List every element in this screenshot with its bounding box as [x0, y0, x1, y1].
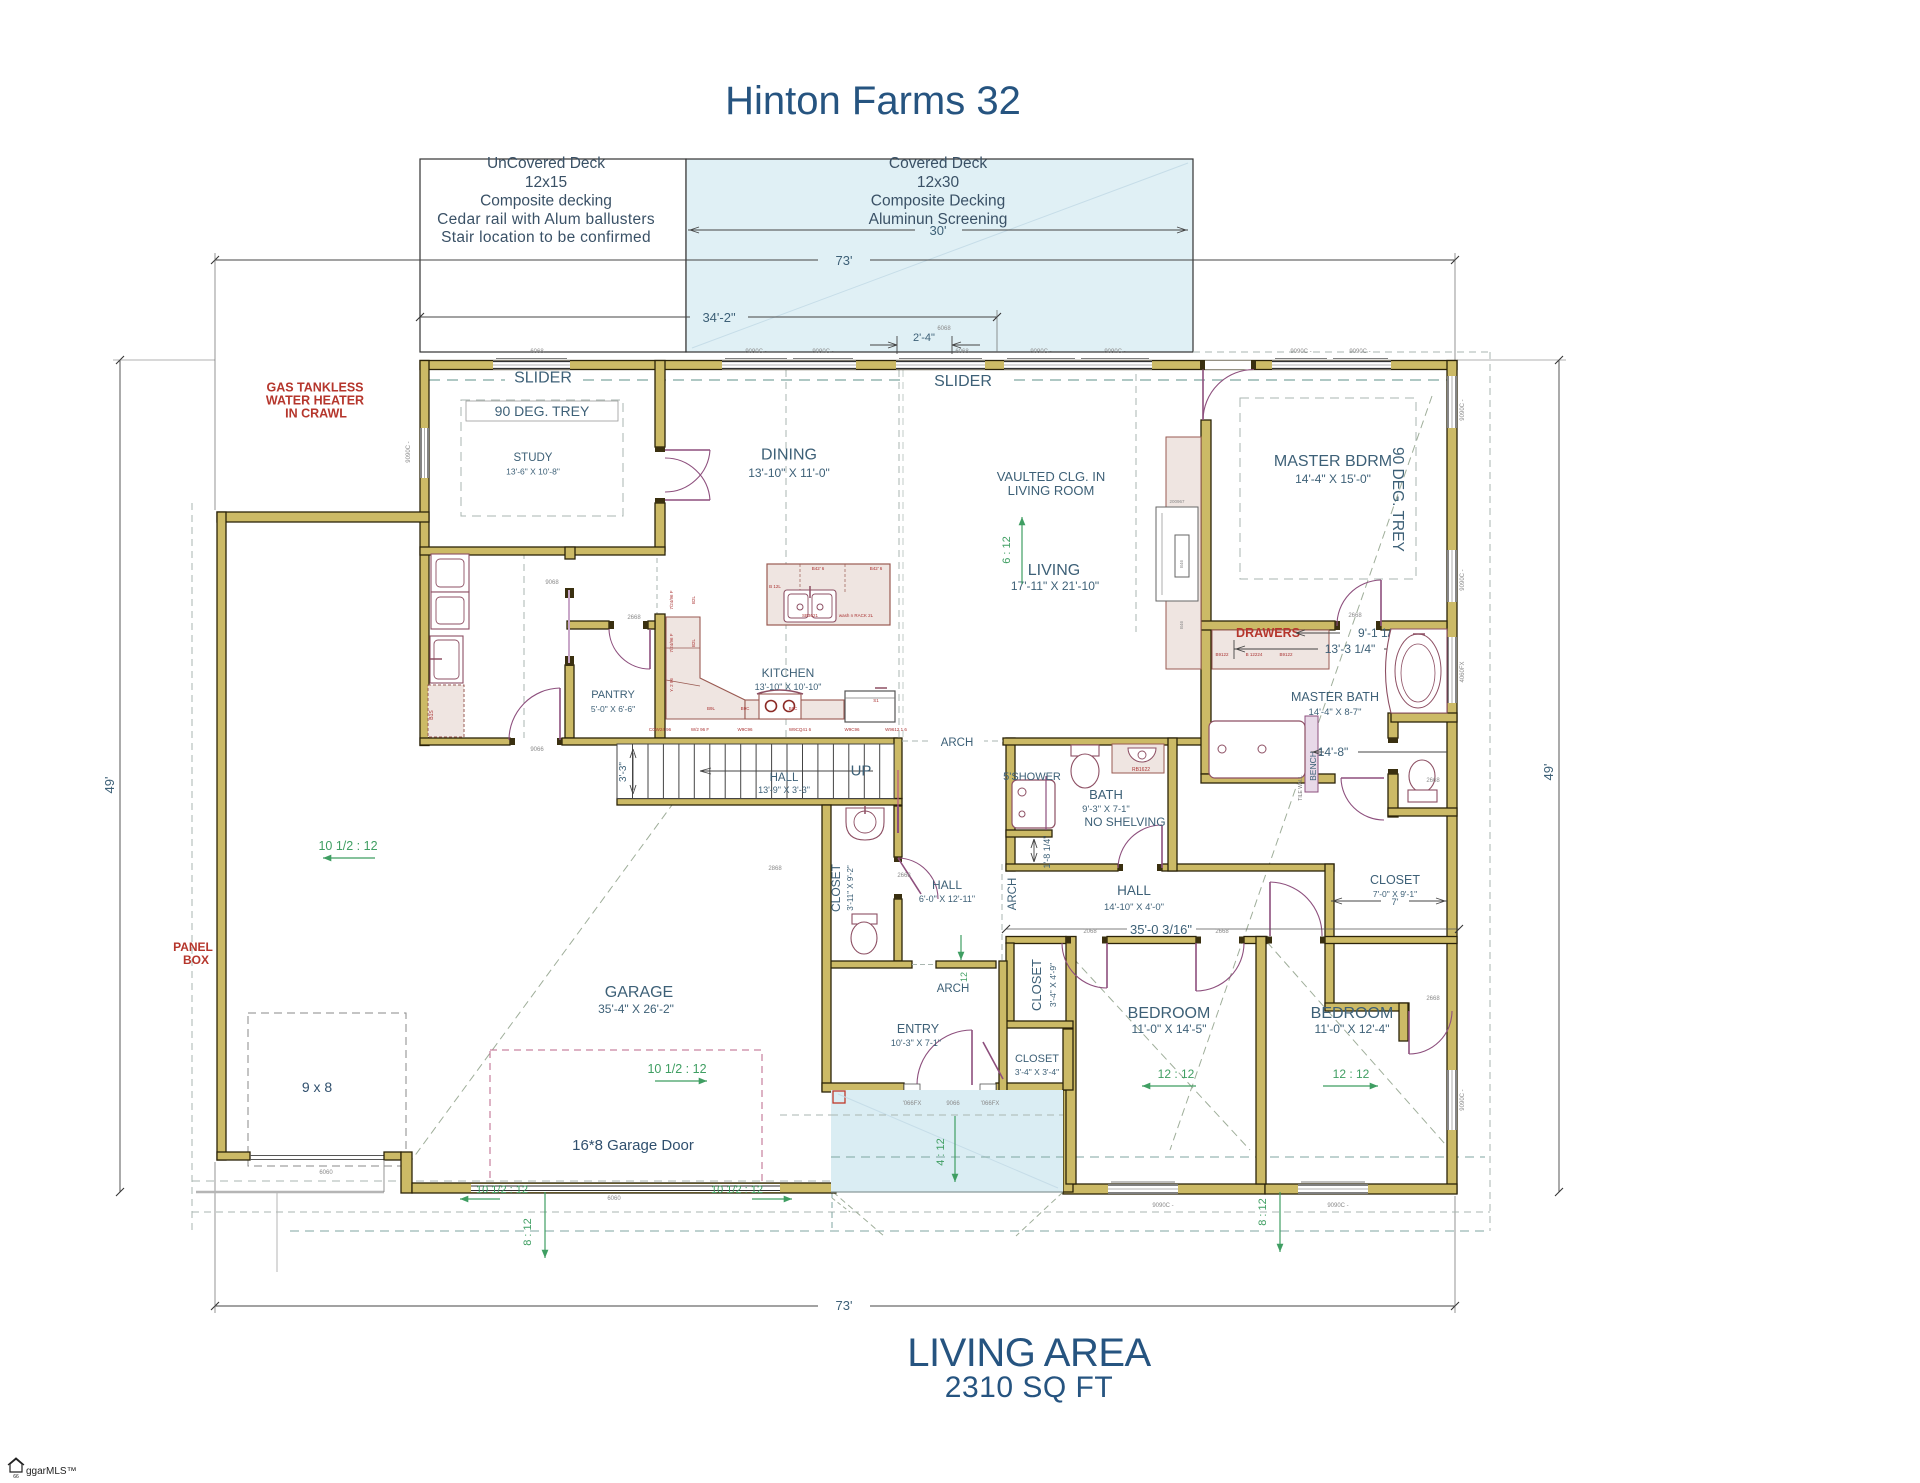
svg-text:W9C96: W9C96 — [844, 727, 860, 732]
svg-text:UnCovered Deck: UnCovered Deck — [487, 155, 605, 172]
svg-text:12x15: 12x15 — [525, 174, 567, 191]
svg-text:14'-10" X 4'-0": 14'-10" X 4'-0" — [1104, 902, 1164, 913]
svg-text:14'-4" X 15'-0": 14'-4" X 15'-0" — [1295, 472, 1371, 486]
svg-text:9066: 9066 — [946, 1101, 960, 1107]
svg-text:B9L: B9L — [707, 706, 716, 711]
svg-text:3'-4" X 4'-9": 3'-4" X 4'-9" — [1048, 963, 1058, 1007]
svg-text:B9122: B9122 — [1279, 652, 1293, 657]
svg-text:13'-9" X 3'-3": 13'-9" X 3'-3" — [758, 785, 810, 795]
svg-text:73': 73' — [836, 1298, 853, 1313]
svg-text:12 : 12: 12 : 12 — [1333, 1067, 1370, 1081]
svg-text:10 1/2 : 12: 10 1/2 : 12 — [647, 1062, 706, 1076]
svg-text:CLOSET: CLOSET — [1370, 873, 1420, 887]
svg-text:DINING: DINING — [761, 447, 817, 464]
svg-text:8 : 12: 8 : 12 — [522, 1218, 534, 1246]
svg-text:2668: 2668 — [1426, 778, 1440, 784]
svg-text:2668: 2668 — [897, 873, 911, 879]
svg-text:30': 30' — [930, 223, 947, 238]
svg-text:9090C -: 9090C - — [1104, 349, 1125, 355]
svg-text:B9122: B9122 — [1215, 652, 1229, 657]
svg-text:BEDROOM: BEDROOM — [1128, 1005, 1211, 1022]
svg-text:5'-0" X 6'-6": 5'-0" X 6'-6" — [591, 704, 635, 714]
svg-text:9090C -: 9090C - — [1460, 569, 1466, 590]
svg-text:7/24/96 F: 7/24/96 F — [669, 633, 674, 652]
svg-text:12x30: 12x30 — [917, 174, 960, 191]
svg-text:13'-10" X 10'-10": 13'-10" X 10'-10" — [755, 682, 822, 692]
svg-text:49': 49' — [102, 777, 117, 794]
svg-text:GARAGE: GARAGE — [605, 984, 673, 1001]
svg-text:3'-3": 3'-3" — [618, 762, 629, 782]
svg-text:CLOSET: CLOSET — [1015, 1053, 1059, 1065]
svg-text:W9CQ41 6: W9CQ41 6 — [789, 727, 812, 732]
svg-text:ARCH: ARCH — [1007, 878, 1019, 911]
svg-text:BEDROOM: BEDROOM — [1311, 1005, 1394, 1022]
svg-text:Covered Deck: Covered Deck — [889, 155, 987, 172]
svg-text:9090C -: 9090C - — [1460, 1089, 1466, 1110]
svg-text:LIVING ROOM: LIVING ROOM — [1008, 483, 1095, 498]
svg-text:2'-4": 2'-4" — [913, 332, 935, 344]
svg-text:B 12224: B 12224 — [1246, 652, 1263, 657]
svg-text:B1S: B1S — [429, 710, 435, 720]
svg-text:HALL: HALL — [932, 878, 962, 892]
svg-text:12: 12 — [959, 972, 969, 982]
svg-text:2310 SQ FT: 2310 SQ FT — [945, 1371, 1113, 1404]
svg-text:10 1/2 : 12: 10 1/2 : 12 — [476, 1184, 528, 1196]
svg-text:B2L: B2L — [691, 596, 696, 605]
svg-text:Stair location to be confirmed: Stair location to be confirmed — [441, 229, 651, 246]
svg-text:LIVING: LIVING — [1028, 562, 1080, 579]
svg-text:35'-0 3/16": 35'-0 3/16" — [1130, 922, 1192, 937]
svg-text:B2L: B2L — [691, 639, 696, 648]
svg-text:6'-0" X 12'-11": 6'-0" X 12'-11" — [919, 894, 975, 904]
svg-text:wash n RACK 2L: wash n RACK 2L — [839, 613, 874, 618]
svg-text:Composite Decking: Composite Decking — [871, 193, 1005, 210]
svg-text:3'-4" X 3'-4": 3'-4" X 3'-4" — [1015, 1067, 1059, 1077]
svg-text:B 12L: B 12L — [769, 584, 781, 589]
svg-text:LIVING AREA: LIVING AREA — [907, 1331, 1151, 1375]
svg-text:COW24 96: COW24 96 — [649, 727, 672, 732]
svg-text:HALL: HALL — [770, 772, 799, 784]
svg-text:13'-3 1/4": 13'-3 1/4" — [1325, 642, 1376, 656]
svg-text:9 x 8: 9 x 8 — [302, 1079, 333, 1095]
svg-text:90 DEG. TREY: 90 DEG. TREY — [495, 403, 590, 419]
svg-text:9090C -: 9090C - — [1327, 1203, 1348, 1209]
svg-text:VAULTED CLG. IN: VAULTED CLG. IN — [997, 469, 1106, 484]
svg-text:49': 49' — [1541, 764, 1556, 781]
svg-text:4 : 12: 4 : 12 — [935, 1138, 947, 1166]
svg-text:2668: 2668 — [1215, 929, 1229, 935]
svg-text:TILE WALL: TILE WALL — [1298, 775, 1304, 801]
svg-text:PANEL: PANEL — [173, 940, 213, 954]
svg-text:DRAWERS: DRAWERS — [1236, 626, 1300, 640]
svg-text:9090C -: 9090C - — [1290, 349, 1311, 355]
svg-text:3'-11" X 9'-2": 3'-11" X 9'-2" — [846, 865, 855, 911]
svg-text:7/24/96 F: 7/24/96 F — [669, 590, 674, 609]
svg-text:34'-2": 34'-2" — [702, 310, 736, 325]
svg-text:MASTER BATH: MASTER BATH — [1291, 690, 1379, 704]
svg-text:S1: S1 — [873, 698, 879, 703]
svg-text:KITCHEN: KITCHEN — [762, 666, 815, 680]
svg-text:B9C: B9C — [789, 706, 799, 711]
svg-text:13'-6" X 10'-8": 13'-6" X 10'-8" — [506, 467, 560, 477]
svg-text:14'-4" X 8-7": 14'-4" X 8-7" — [1309, 707, 1362, 718]
svg-text:B9C: B9C — [741, 706, 751, 711]
svg-text:ARCH: ARCH — [937, 983, 970, 995]
svg-text:STUDY: STUDY — [514, 452, 553, 464]
svg-text:13'-10" X 11'-0": 13'-10" X 11'-0" — [748, 466, 830, 480]
svg-text:10 1/2 : 12: 10 1/2 : 12 — [711, 1184, 763, 1196]
svg-text:6060: 6060 — [607, 1196, 621, 1202]
svg-text:Cedar rail with Alum balluster: Cedar rail with Alum ballusters — [437, 211, 655, 228]
svg-text:10 1/2 : 12: 10 1/2 : 12 — [318, 839, 377, 853]
svg-text:35'-4" X 26'-2": 35'-4" X 26'-2" — [598, 1002, 674, 1016]
svg-text:'066FX: '066FX — [981, 1101, 1000, 1107]
svg-text:Composite decking: Composite decking — [480, 193, 612, 210]
svg-text:9090C -: 9090C - — [745, 349, 766, 355]
svg-text:6 : 12: 6 : 12 — [1001, 536, 1013, 564]
svg-text:RB1622: RB1622 — [1132, 767, 1150, 773]
svg-text:B46: B46 — [1179, 560, 1184, 569]
svg-text:2068: 2068 — [1083, 929, 1097, 935]
svg-text:ARCH: ARCH — [941, 737, 974, 749]
svg-text:WATER HEATER: WATER HEATER — [266, 394, 364, 408]
svg-text:6068: 6068 — [937, 326, 951, 332]
svg-text:GAS TANKLESS: GAS TANKLESS — [267, 381, 364, 395]
svg-text:BOX: BOX — [183, 953, 209, 967]
svg-text:9090C -: 9090C - — [1460, 399, 1466, 420]
svg-text:SB3621: SB3621 — [802, 613, 819, 618]
svg-text:NO SHELVING: NO SHELVING — [1084, 815, 1165, 829]
svg-text:Hinton Farms 32: Hinton Farms 32 — [725, 79, 1021, 123]
svg-text:6068: 6068 — [530, 349, 544, 355]
svg-text:MASTER BDRM: MASTER BDRM — [1274, 453, 1392, 470]
svg-text:5'SHOWER: 5'SHOWER — [1003, 771, 1061, 783]
svg-text:11'-0" X 12'-4": 11'-0" X 12'-4" — [1315, 1022, 1390, 1036]
svg-text:2668: 2668 — [627, 615, 641, 621]
svg-text:11'-0" X 14'-5": 11'-0" X 14'-5" — [1132, 1022, 1207, 1036]
svg-text:2668: 2668 — [1426, 996, 1440, 1002]
svg-text:IN CRAWL: IN CRAWL — [285, 407, 347, 421]
svg-text:90 DEG. TREY: 90 DEG. TREY — [1389, 447, 1406, 552]
svg-text:4060FX: 4060FX — [1460, 661, 1466, 682]
svg-text:12 : 12: 12 : 12 — [1158, 1067, 1195, 1081]
svg-text:Y. 2 96: Y. 2 96 — [669, 678, 674, 692]
svg-text:CLOSET: CLOSET — [1029, 959, 1044, 1011]
svg-text:200967: 200967 — [1169, 499, 1185, 504]
svg-text:W/2 96 F: W/2 96 F — [691, 727, 710, 732]
svg-text:17'-11" X 21'-10": 17'-11" X 21'-10" — [1011, 579, 1099, 593]
svg-text:HALL: HALL — [1117, 883, 1151, 898]
svg-text:SLIDER: SLIDER — [934, 373, 992, 390]
svg-text:6068: 6068 — [955, 349, 969, 355]
svg-text:8 : 12: 8 : 12 — [1257, 1198, 1269, 1226]
svg-text:9'-3" X 7-1": 9'-3" X 7-1" — [1082, 804, 1130, 815]
svg-text:2668: 2668 — [1348, 613, 1362, 619]
svg-text:PANTRY: PANTRY — [591, 689, 635, 701]
svg-text:ggarMLS™: ggarMLS™ — [26, 1466, 77, 1477]
svg-text:16*8 Garage Door: 16*8 Garage Door — [572, 1137, 694, 1154]
svg-text:2868: 2868 — [768, 866, 782, 872]
svg-text:10'-3" X 7-1": 10'-3" X 7-1" — [891, 1038, 941, 1048]
svg-text:9090C -: 9090C - — [812, 349, 833, 355]
svg-text:9090C -: 9090C - — [1349, 349, 1370, 355]
svg-text:1'-8 1/4": 1'-8 1/4" — [1042, 836, 1052, 869]
svg-text:W9612 1 6: W9612 1 6 — [885, 727, 907, 732]
svg-text:W9C96: W9C96 — [737, 727, 753, 732]
svg-text:9066: 9066 — [530, 747, 544, 753]
svg-text:7': 7' — [1391, 897, 1398, 908]
svg-text:BENCH: BENCH — [1308, 751, 1318, 781]
svg-text:9090C -: 9090C - — [406, 441, 412, 462]
svg-text:ENTRY: ENTRY — [897, 1022, 940, 1036]
svg-text:BATH: BATH — [1089, 787, 1123, 802]
svg-text:9090C -: 9090C - — [1030, 349, 1051, 355]
svg-text:9068: 9068 — [545, 580, 559, 586]
svg-text:UP: UP — [851, 763, 872, 780]
svg-text:SLIDER: SLIDER — [514, 370, 572, 387]
svg-text:B42' 6: B42' 6 — [870, 566, 883, 571]
svg-text:14'-8": 14'-8" — [1318, 745, 1349, 759]
svg-text:'066FX: '066FX — [903, 1101, 922, 1107]
svg-text:B46: B46 — [1179, 621, 1184, 630]
svg-text:66: 66 — [13, 1474, 19, 1480]
svg-text:9090C -: 9090C - — [1152, 1203, 1173, 1209]
svg-text:6060: 6060 — [319, 1170, 333, 1176]
svg-text:73': 73' — [836, 253, 853, 268]
svg-text:CLOSET: CLOSET — [829, 863, 843, 912]
svg-text:B42' 6: B42' 6 — [812, 566, 825, 571]
